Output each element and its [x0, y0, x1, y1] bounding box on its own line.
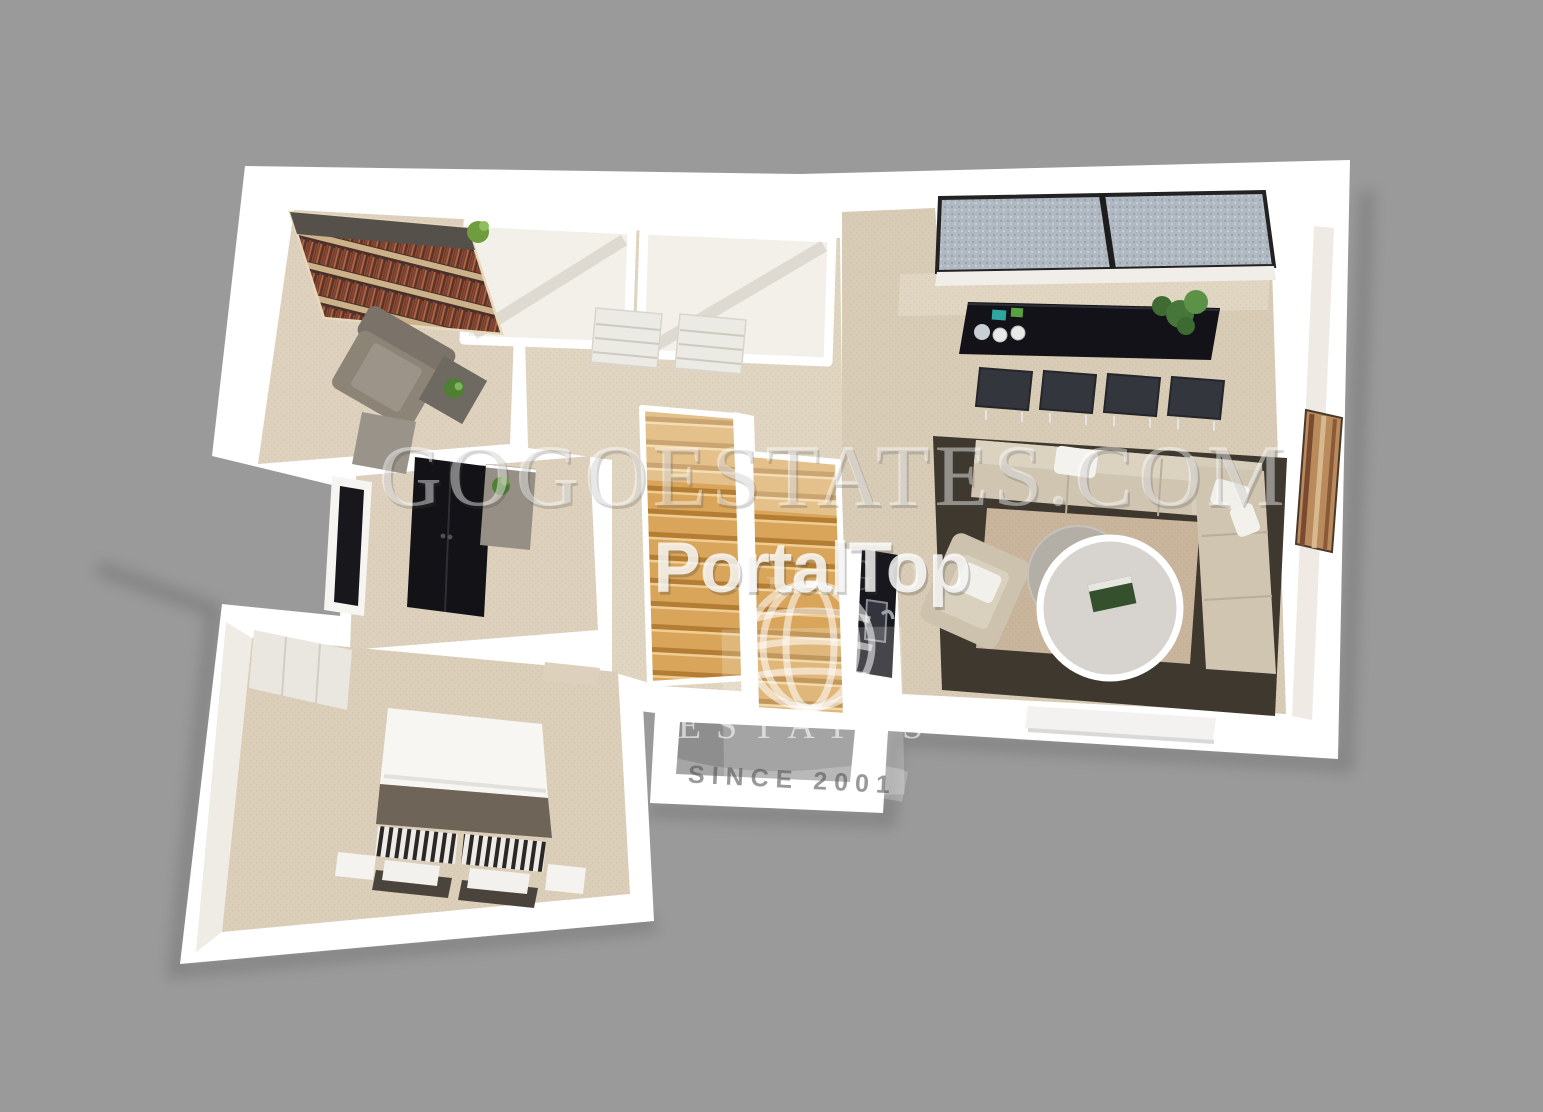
floorplan-render: GOGOESTATES.COM GOGOESTATES.COM GOGO EST… [40, 16, 1543, 1096]
door-panel [675, 314, 746, 374]
floorplan-svg: GOGOESTATES.COM GOGOESTATES.COM GOGO EST… [40, 16, 1543, 1096]
living-room-window [935, 192, 1276, 286]
nightstand [335, 852, 376, 880]
watermark-logo-name: ESTATES [678, 705, 938, 747]
nightstand [545, 864, 586, 894]
door-panel [591, 308, 662, 368]
watermark-portal: PortalTop [653, 529, 970, 608]
watermark-site: GOGOESTATES.COM [378, 428, 1289, 525]
